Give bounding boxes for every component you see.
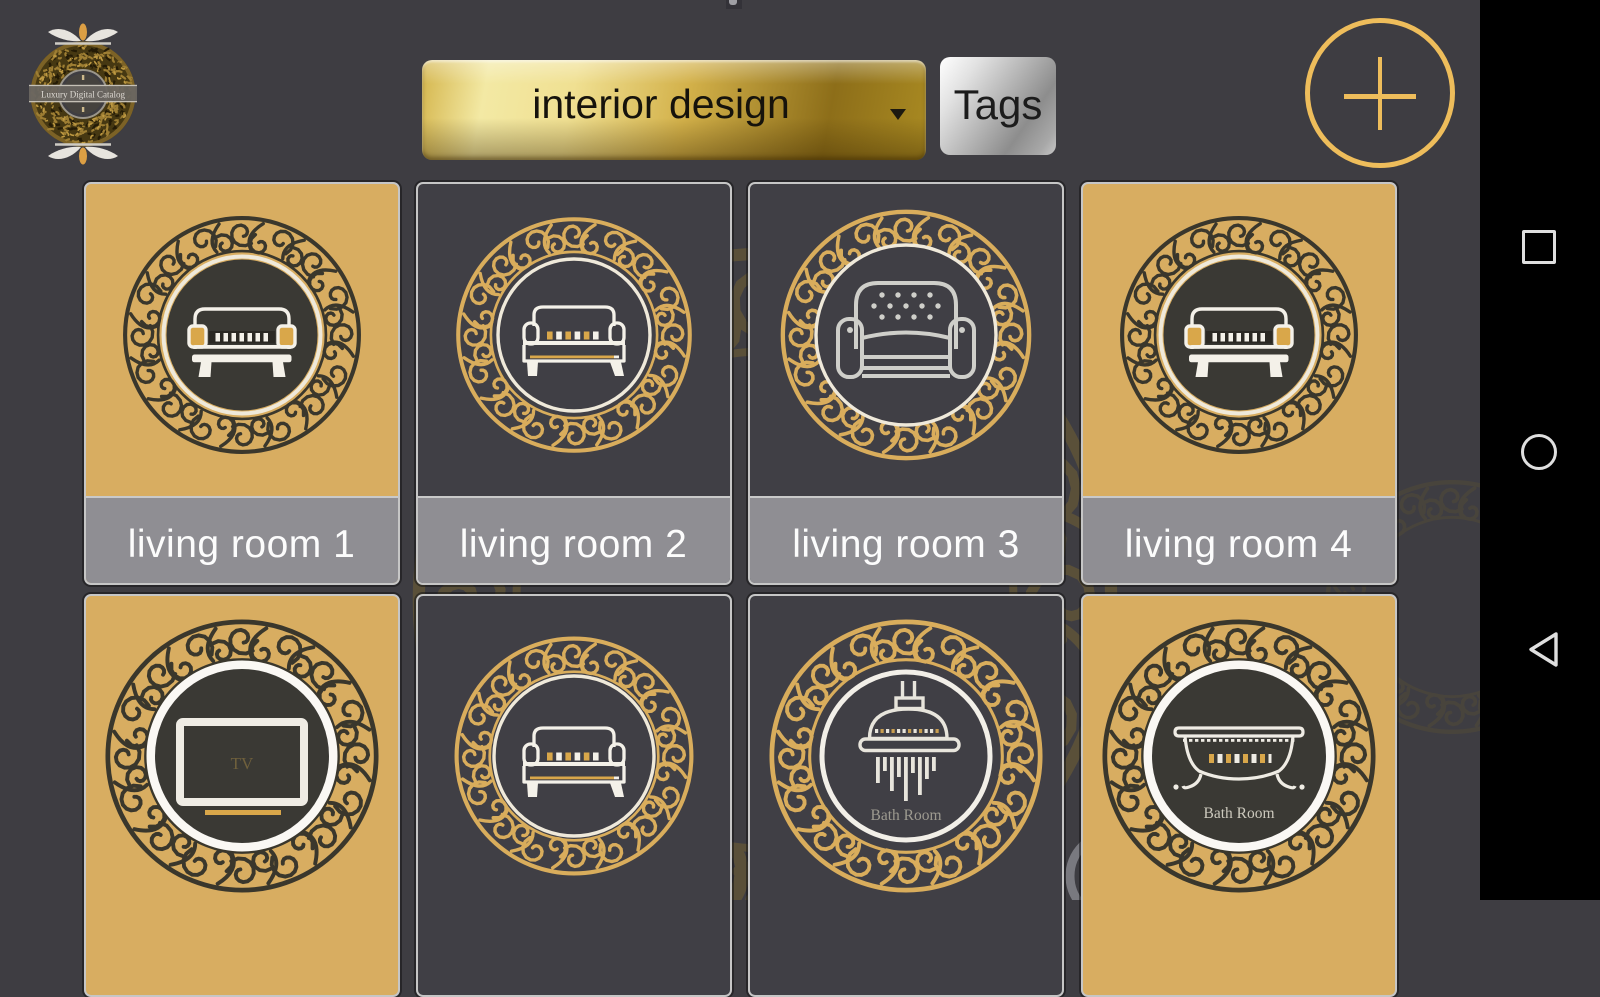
svg-text:Luxury Digital Catalog: Luxury Digital Catalog	[41, 89, 125, 99]
